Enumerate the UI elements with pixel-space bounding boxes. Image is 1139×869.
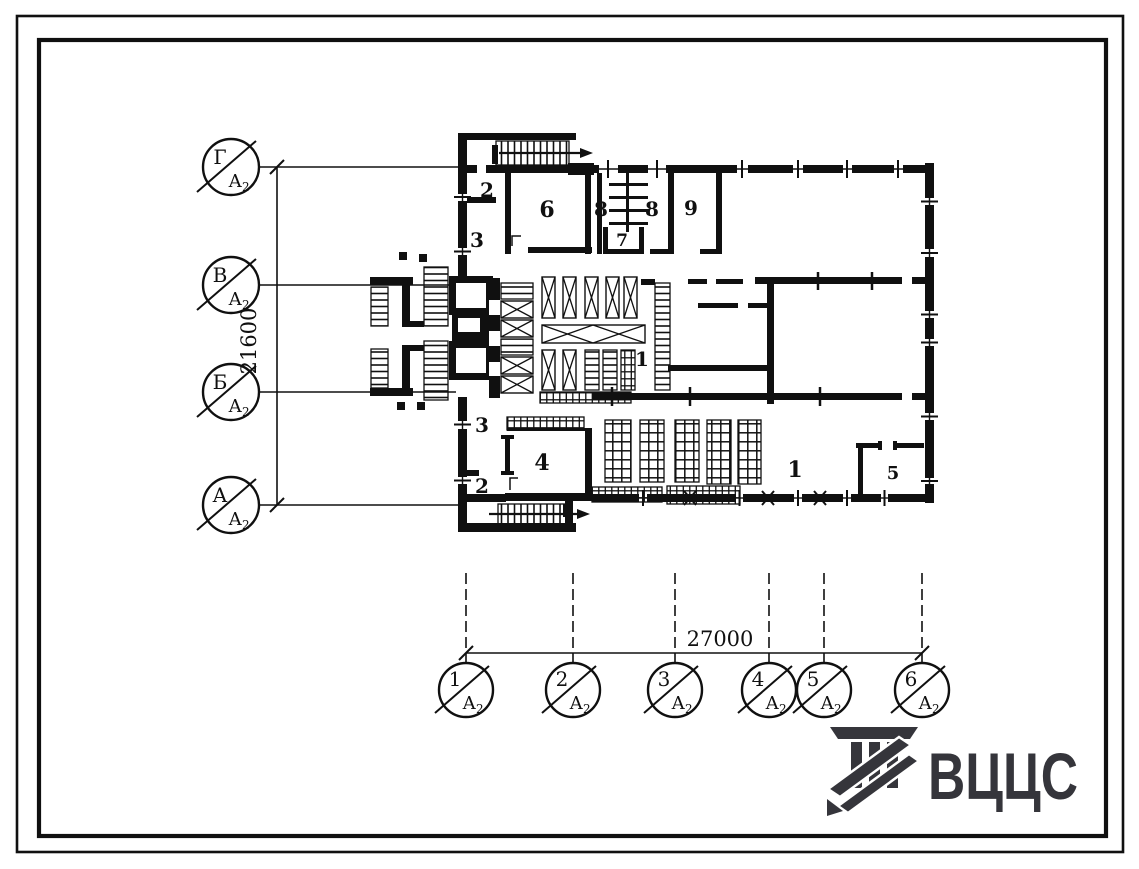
floor-plan-drawing: ГА2ВА2БА2АА2 1А22А23А24А25А26А2 23688791… <box>0 0 1139 869</box>
room-label-3: 3 <box>475 413 489 437</box>
svg-text:1: 1 <box>449 667 462 691</box>
axis-marker-В: ВА2 <box>197 257 456 313</box>
drawing-sheet: ГА2ВА2БА2АА2 1А22А23А24А25А26А2 23688791… <box>0 0 1139 869</box>
vertical-dimension-label: 21600 <box>237 308 261 375</box>
svg-text:2: 2 <box>556 667 569 691</box>
room-label-5: 5 <box>887 463 900 484</box>
svg-text:4: 4 <box>752 667 765 691</box>
room-label-6: 6 <box>539 197 554 223</box>
svg-text:Г: Г <box>213 145 226 169</box>
svg-text:6: 6 <box>905 667 918 691</box>
svg-text:Б: Б <box>213 370 228 394</box>
room-label-7: 7 <box>616 231 628 251</box>
room-label-2: 2 <box>480 178 494 202</box>
frame-outer <box>17 16 1123 852</box>
axis-marker-Б: БА2 <box>197 364 456 420</box>
room-label-4: 4 <box>534 450 549 476</box>
axis-marker-6: 6А2 <box>891 573 949 717</box>
room-label-3: 3 <box>470 228 484 252</box>
plan-geometry <box>370 133 938 532</box>
axis-marker-5: 5А2 <box>793 573 851 717</box>
horizontal-dimension-label: 27000 <box>687 627 754 651</box>
room-label-9: 9 <box>684 196 698 220</box>
sheet-frame <box>17 16 1123 852</box>
axis-marker-2: 2А2 <box>542 573 600 717</box>
logo-columns-icon <box>827 727 919 816</box>
room-label-2: 2 <box>475 474 489 498</box>
svg-text:В: В <box>213 263 228 287</box>
svg-text:3: 3 <box>658 667 671 691</box>
logo-text: ВЦЦС <box>928 739 1078 813</box>
axis-marker-Г: ГА2 <box>197 139 458 195</box>
svg-text:А: А <box>212 483 227 507</box>
room-label-1: 1 <box>787 457 802 483</box>
axis-marker-1: 1А2 <box>435 573 493 717</box>
room-label-8: 8 <box>645 197 659 221</box>
room-label-8: 8 <box>594 197 608 221</box>
axis-marker-А: АА2 <box>197 477 460 533</box>
vtsts-logo: ВЦЦС <box>827 727 1078 816</box>
room-label-1: 1 <box>635 347 649 371</box>
svg-text:5: 5 <box>807 667 820 691</box>
